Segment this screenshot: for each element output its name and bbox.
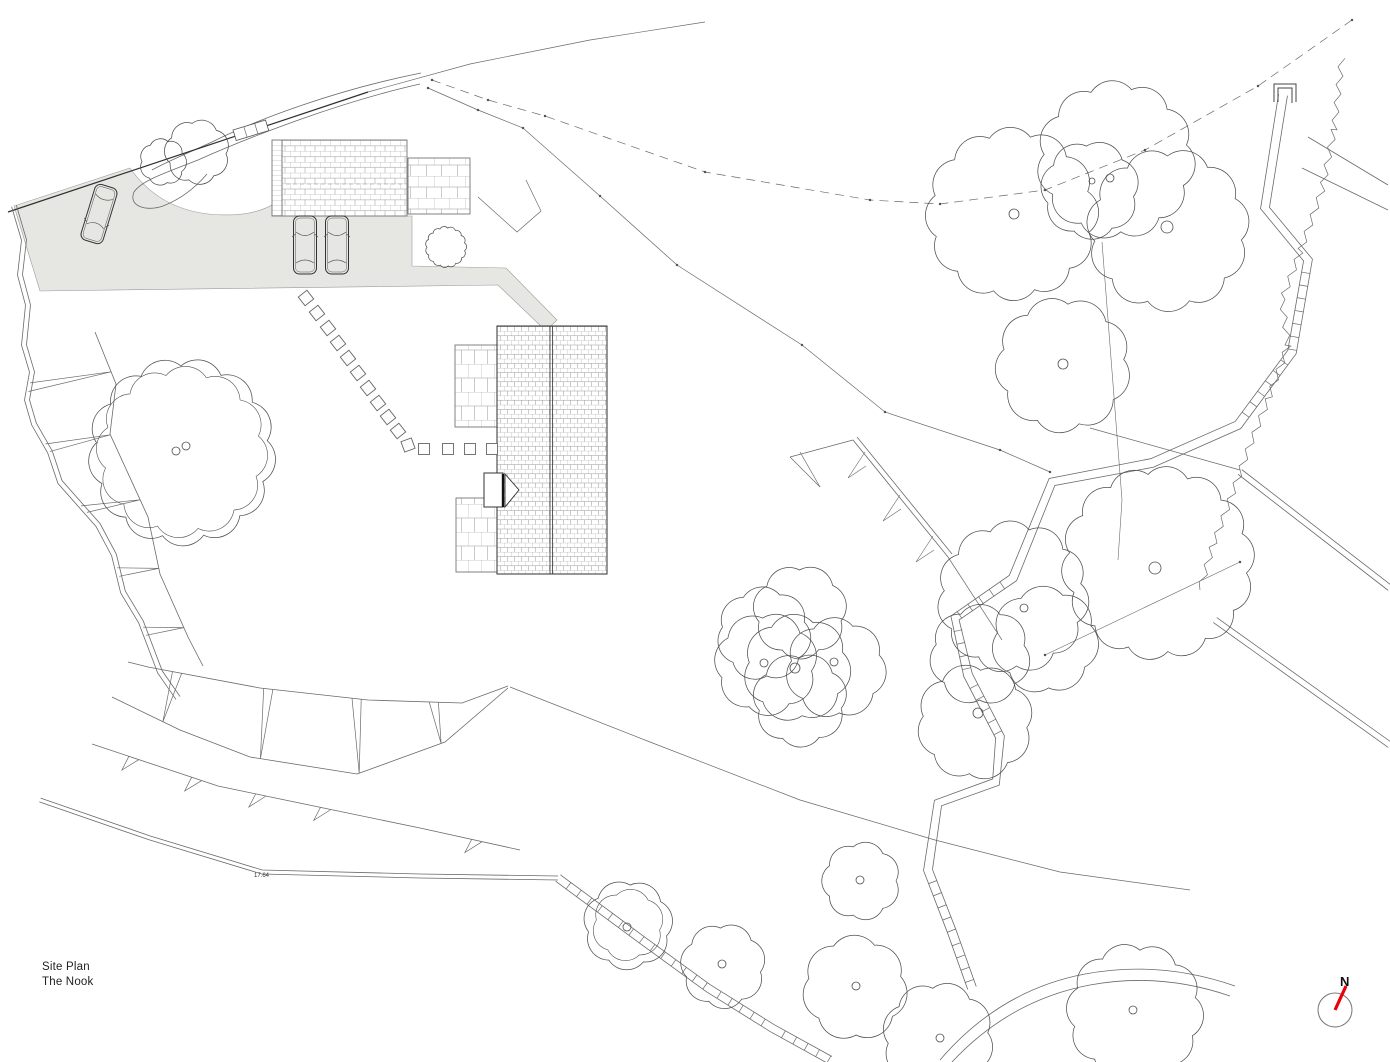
stepping-stone [320, 320, 335, 335]
step-rung [954, 630, 963, 632]
path-edge [1217, 618, 1390, 743]
step-rung [608, 913, 613, 919]
bank-bottom-line [95, 332, 203, 666]
step-rung [639, 937, 644, 943]
step-rung [650, 944, 655, 950]
step-rung [982, 708, 990, 712]
path-edge [1238, 474, 1388, 590]
site-line [1308, 137, 1388, 185]
line-node [427, 87, 429, 89]
bank-top-line [92, 744, 520, 850]
path-edge [560, 875, 832, 1057]
site-line [916, 536, 934, 562]
bank-hachure [29, 372, 112, 392]
line-node [477, 109, 479, 111]
step-rung [947, 929, 955, 932]
tree-canopy [938, 521, 1089, 672]
tree-canopy [745, 614, 851, 720]
step-rung [965, 979, 973, 982]
step-rung [577, 890, 582, 896]
bank-top-line [128, 662, 508, 703]
stepping-stone [487, 444, 498, 455]
stepping-stone [390, 423, 405, 438]
path-edge [924, 94, 1304, 989]
site-line [478, 180, 541, 232]
step-rung [989, 589, 994, 596]
tree-trunk [1106, 174, 1114, 182]
hedge-line [1199, 58, 1345, 590]
tree-trunk [718, 960, 726, 968]
bank-hachure [81, 500, 140, 513]
tree-trunk [936, 1034, 944, 1042]
tree-trunk [1149, 562, 1161, 574]
step-rung [988, 719, 996, 723]
step-rung [750, 1012, 754, 1019]
stepping-stone [360, 380, 375, 395]
tree-trunk [760, 659, 768, 667]
bank-hachure [143, 627, 184, 635]
stepping-stone [298, 290, 313, 305]
line-node [599, 195, 601, 197]
tree-canopy [1041, 142, 1138, 239]
tree-trunk [1129, 1006, 1137, 1014]
tree-canopy [164, 120, 228, 184]
tree-canopy-inner [96, 366, 267, 537]
tree-canopy [681, 925, 765, 1009]
path-edge [1242, 470, 1390, 586]
step-rung [618, 921, 623, 927]
site-line [790, 440, 853, 457]
step-rung [928, 880, 936, 883]
tree-canopy [715, 614, 817, 715]
step-rung [976, 696, 984, 700]
tree-trunk [973, 708, 983, 718]
porch-canopy [484, 473, 503, 507]
stepping-stone [340, 350, 355, 365]
site-plan-svg: N17.64 [0, 0, 1390, 1062]
tree-canopy [883, 983, 992, 1062]
bank-hachure [185, 777, 202, 791]
stepping-stone [401, 438, 415, 452]
step-rung [793, 1037, 797, 1044]
site-line [1102, 242, 1122, 560]
step-rung [1297, 298, 1306, 300]
north-needle [1335, 986, 1346, 1010]
project-name: The Nook [42, 975, 93, 990]
north-arrow: N [1318, 974, 1352, 1027]
line-node [704, 171, 706, 173]
line-node [544, 115, 546, 117]
site-line [432, 20, 1352, 204]
line-node [869, 199, 871, 201]
bank-bottom-line [112, 688, 508, 774]
step-rung [933, 893, 941, 896]
step-rung [956, 642, 965, 644]
tree-trunk [1161, 221, 1173, 233]
step-rung [961, 967, 969, 970]
line-node [522, 127, 524, 129]
step-rung [761, 1019, 765, 1026]
step-rung [566, 883, 571, 889]
step-rung [1242, 412, 1249, 417]
paved-area [408, 158, 470, 214]
line-node [1257, 85, 1259, 87]
tree-canopy [925, 127, 1098, 300]
step-rung [1299, 285, 1308, 287]
step-rung [943, 917, 951, 920]
tree-canopy [822, 842, 898, 919]
bank-hachure [352, 698, 361, 773]
tree-canopy [1038, 81, 1195, 238]
bank-hachure [45, 435, 110, 452]
tree-canopy [426, 227, 467, 268]
stepping-stone [370, 395, 385, 410]
line-node [1239, 561, 1241, 563]
site-line [935, 840, 1190, 890]
site-line [948, 557, 1002, 640]
step-rung [703, 983, 708, 989]
paved-area [282, 140, 407, 216]
paved-area [456, 498, 498, 572]
tree-canopy [141, 139, 187, 185]
step-rung [957, 955, 965, 958]
tree-trunk [852, 982, 860, 990]
site-line [853, 440, 948, 557]
spot-level-text: 17.64 [254, 873, 270, 879]
step-rung [1250, 402, 1257, 407]
step-rung [957, 611, 962, 618]
step-rung [728, 998, 732, 1005]
stepping-stone [443, 444, 454, 455]
step-rung [804, 1043, 808, 1050]
tree-canopy [787, 618, 887, 717]
line-node [1351, 19, 1353, 21]
line-node [1044, 654, 1046, 656]
step-rung [994, 731, 1002, 735]
line-node [939, 203, 941, 205]
line-node [487, 99, 489, 101]
step-rung [1000, 582, 1005, 589]
tree-canopy [1066, 945, 1203, 1062]
step-rung [827, 1056, 831, 1062]
tree-canopy [803, 935, 907, 1038]
step-rung [816, 1050, 820, 1057]
building-roof [497, 326, 607, 574]
site-line [510, 687, 935, 840]
step-rung [1295, 310, 1304, 312]
tree-canopy [89, 360, 276, 546]
building-layer [497, 326, 607, 574]
site-line [1090, 428, 1240, 470]
tree-canopy [584, 882, 672, 970]
site-line [848, 452, 866, 478]
step-rung [739, 1005, 743, 1012]
step-rung [970, 684, 978, 688]
line-node [431, 79, 433, 81]
bank-hachure [122, 756, 139, 770]
step-rung [962, 668, 971, 670]
north-label: N [1340, 974, 1349, 989]
bank-hachure [163, 672, 182, 722]
step-rung [1288, 349, 1297, 351]
step-rung [938, 905, 946, 908]
path-edge [41, 798, 558, 876]
step-rung [1292, 323, 1301, 325]
drive-curve [952, 980, 1230, 1062]
line-node [884, 411, 886, 413]
bank-hachure [429, 702, 441, 743]
path-edge [1213, 622, 1388, 747]
paved-area [272, 140, 282, 216]
stepping-stone [330, 335, 345, 350]
paved-surfaces-layer [272, 140, 498, 572]
line-node [801, 344, 803, 346]
site-plan-page: { "canvas": {"w": 1390, "h": 1062, "bg":… [0, 0, 1390, 1062]
line-node [999, 449, 1001, 451]
step-rung [671, 960, 676, 966]
paved-area [455, 345, 497, 427]
tree-trunk [172, 447, 180, 455]
site-line [883, 495, 901, 521]
drive-curve [940, 969, 1235, 1060]
stepping-stone [380, 409, 395, 424]
tree-trunk [856, 876, 864, 884]
step-rung [1257, 391, 1264, 396]
tree-canopy [992, 586, 1098, 692]
step-rung [1301, 272, 1310, 274]
stepping-stone [465, 444, 476, 455]
tree-canopy [753, 567, 846, 659]
line-node [1144, 149, 1146, 151]
step-rung [1290, 336, 1299, 338]
site-line [1045, 562, 1240, 655]
site-plan-canvas: N17.64 [0, 0, 1390, 1062]
stepping-stone [309, 305, 324, 320]
site-line [790, 457, 820, 487]
step-rung [597, 906, 602, 912]
stepping-stone [419, 444, 430, 455]
site-line [857, 437, 952, 554]
line-node [676, 264, 678, 266]
step-rung [952, 943, 960, 946]
bank-hachure [117, 568, 159, 577]
step-rung [978, 596, 983, 603]
tree-trunk [1020, 604, 1028, 612]
step-rung [587, 898, 592, 904]
line-node [1049, 471, 1051, 473]
title-block: Site Plan The Nook [42, 960, 93, 990]
site-line [800, 452, 820, 487]
site-line [368, 22, 705, 92]
step-rung [717, 991, 721, 998]
tree-trunk [1009, 209, 1019, 219]
drawing-title: Site Plan [42, 960, 93, 975]
tree-trunk [182, 442, 190, 450]
bank-hachure [260, 688, 273, 758]
tree-canopy [1087, 151, 1249, 312]
banks-layer [29, 332, 521, 853]
tree-canopy [718, 587, 811, 679]
site-line [1302, 168, 1388, 210]
stepping-stone [350, 365, 365, 380]
tree-canopy [995, 299, 1129, 433]
step-rung [781, 1031, 785, 1038]
tree-trunk [1058, 359, 1068, 369]
lines-layer [8, 19, 1388, 890]
step-rung [692, 975, 697, 981]
tree-trunk [830, 658, 838, 666]
path-edge [932, 96, 1312, 987]
